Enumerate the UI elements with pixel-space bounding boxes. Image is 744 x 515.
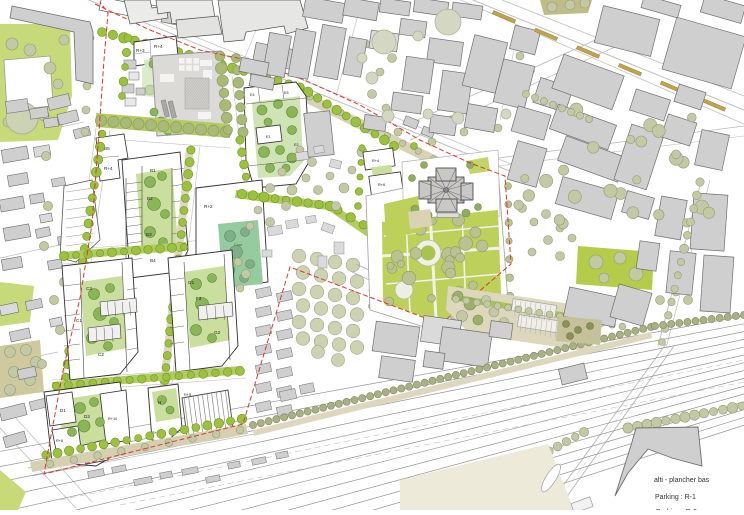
svg-text:G1: G1 xyxy=(188,280,195,285)
svg-text:E5: E5 xyxy=(284,91,289,95)
svg-text:R+8: R+8 xyxy=(56,439,63,443)
svg-text:D2: D2 xyxy=(84,414,90,419)
svg-text:B4: B4 xyxy=(150,258,156,263)
svg-text:R+10: R+10 xyxy=(108,417,117,421)
svg-text:R+3: R+3 xyxy=(136,48,145,53)
svg-text:Cour: Cour xyxy=(234,243,243,247)
svg-text:E1: E1 xyxy=(266,135,271,139)
svg-text:G2: G2 xyxy=(214,330,221,335)
svg-text:alti - plancher bas: alti - plancher bas xyxy=(654,477,710,484)
svg-text:E4: E4 xyxy=(250,93,255,97)
svg-text:Parking : R-1: Parking : R-1 xyxy=(655,494,696,501)
svg-text:R+2: R+2 xyxy=(204,204,213,209)
svg-text:D1: D1 xyxy=(60,408,66,413)
svg-text:R+4: R+4 xyxy=(104,166,113,171)
svg-text:R+5: R+5 xyxy=(184,393,191,397)
svg-text:B2: B2 xyxy=(147,196,153,201)
svg-text:F3: F3 xyxy=(196,296,202,301)
svg-text:H: H xyxy=(158,400,161,405)
svg-text:R+6: R+6 xyxy=(378,183,385,187)
svg-text:B1: B1 xyxy=(150,168,156,173)
svg-text:C3: C3 xyxy=(86,286,92,291)
svg-text:R+4: R+4 xyxy=(372,159,379,163)
svg-text:B3: B3 xyxy=(146,232,152,237)
svg-text:R+4: R+4 xyxy=(154,44,163,49)
svg-text:C2: C2 xyxy=(98,352,104,357)
svg-text:C1: C1 xyxy=(76,318,82,323)
